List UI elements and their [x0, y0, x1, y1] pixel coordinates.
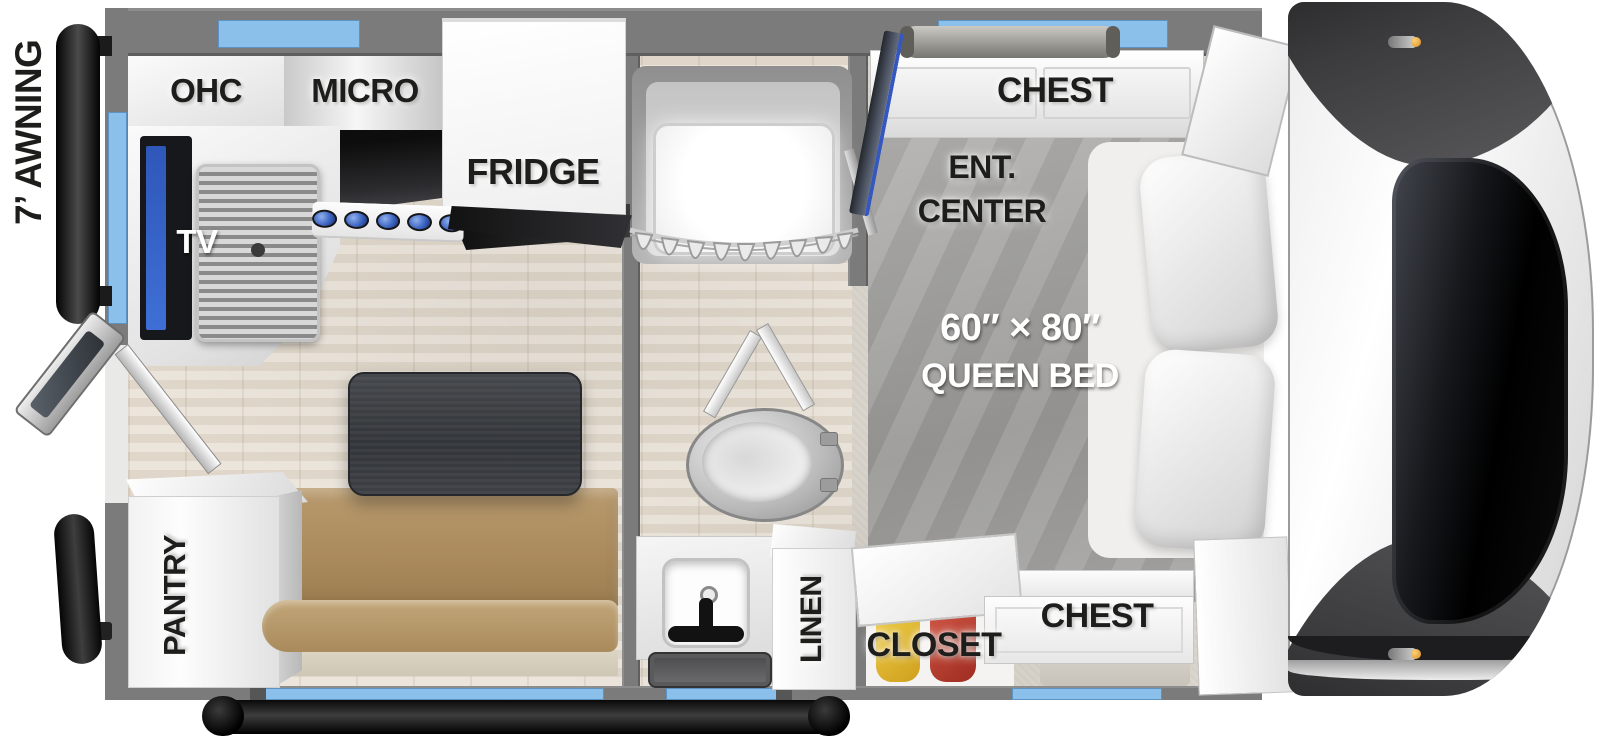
bed-type-label: QUEEN BED	[896, 356, 1144, 396]
clearance-light-top	[1388, 36, 1418, 48]
stove-knob	[312, 209, 337, 228]
clearance-light-bottom	[1388, 648, 1418, 660]
bumper-step-cap-right	[808, 696, 850, 736]
floorplan-canvas: 7’ AWNING OHC MICRO FRIDG	[0, 0, 1600, 738]
awning-roller	[56, 24, 100, 324]
window-top-kitchen	[218, 20, 360, 48]
closet-label: CLOSET	[856, 624, 1012, 666]
bath-floor-tray	[648, 652, 772, 688]
pantry-cabinet	[128, 496, 280, 688]
tv-label: TV	[162, 222, 232, 262]
bed-size-label: 60″ × 80″	[896, 306, 1144, 350]
toilet-hinge	[820, 478, 838, 492]
faucet-handles	[668, 626, 744, 642]
shower-curtain	[624, 220, 864, 282]
corner-cabinet	[1193, 536, 1292, 695]
stove-knob	[344, 210, 369, 229]
entry-grab-handle	[53, 513, 103, 665]
burner-knob-dot	[251, 243, 265, 257]
bed-pillow-bottom	[1133, 348, 1276, 555]
ent-center-label-line1: ENT.	[894, 148, 1070, 186]
stove-knob-strip	[311, 201, 464, 242]
awning-length-label: 7’ AWNING	[0, 4, 58, 260]
stove-knob	[375, 212, 400, 231]
sofa-backrest	[258, 488, 618, 610]
dinette-table	[348, 372, 582, 496]
ent-center-soundbar	[900, 26, 1120, 58]
toilet-hinge	[820, 432, 838, 446]
cap-front-window	[1392, 158, 1568, 624]
ohc-label: OHC	[146, 72, 266, 110]
toilet-lid	[702, 422, 812, 502]
micro-label: MICRO	[284, 72, 446, 110]
pantry-label: PANTRY	[152, 512, 198, 680]
front-cap	[1288, 2, 1594, 696]
sofa-base	[268, 650, 618, 676]
bumper-step-cap-left	[202, 696, 244, 736]
entry-door-window	[29, 330, 105, 419]
fridge-label: FRIDGE	[448, 150, 618, 194]
entry-door-opening	[105, 345, 128, 503]
window-bottom-dinette	[262, 688, 604, 700]
linen-label: LINEN	[790, 556, 834, 682]
bed-pillow-top	[1138, 149, 1281, 355]
stove-knob	[407, 213, 432, 232]
window-bottom-bedroom	[1012, 688, 1162, 700]
chest-head-label: CHEST	[980, 70, 1130, 112]
ent-center-label-line2: CENTER	[894, 192, 1070, 230]
cap-base-strip	[1288, 660, 1570, 680]
sofa-seat	[262, 600, 618, 652]
bumper-step	[206, 700, 850, 734]
chest-foot-label: CHEST	[1022, 596, 1172, 636]
